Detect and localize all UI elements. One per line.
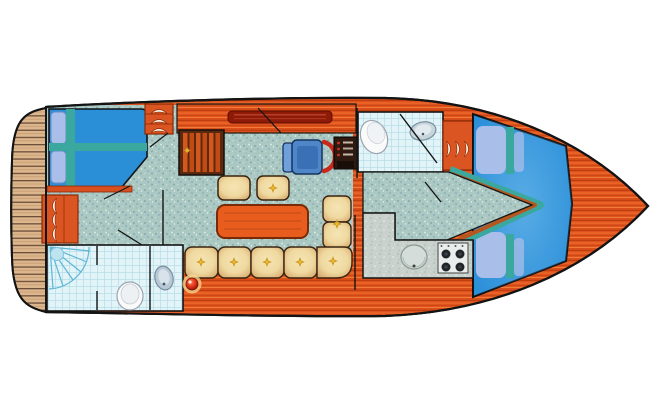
shower-drain bbox=[51, 248, 64, 261]
stool bbox=[218, 176, 250, 200]
wardrobe-locker-forward bbox=[443, 121, 473, 170]
windshield-highlight bbox=[234, 114, 326, 116]
wardrobe-locker-aft bbox=[145, 104, 173, 134]
panel-lower bbox=[337, 161, 354, 168]
berth-pillow-port bbox=[51, 112, 66, 144]
basin-drain bbox=[163, 283, 166, 286]
bow-runner bbox=[506, 127, 514, 174]
swim-platform bbox=[11, 108, 46, 312]
bow-pillow bbox=[476, 232, 506, 278]
berth-pillow-starboard bbox=[51, 151, 66, 183]
helm-seat-cushion bbox=[297, 146, 318, 169]
boat-floor-plan bbox=[0, 0, 664, 415]
windshield-band bbox=[228, 111, 332, 123]
forward-head bbox=[356, 112, 443, 172]
bow-pillow-edge bbox=[514, 132, 524, 172]
sink-drain bbox=[413, 265, 416, 268]
berth-runner-horizontal bbox=[49, 143, 147, 151]
basin-drain bbox=[422, 133, 425, 136]
stove bbox=[438, 243, 468, 273]
dinette-table bbox=[217, 205, 308, 238]
bow-pillow bbox=[476, 126, 506, 174]
bow-runner bbox=[506, 234, 514, 278]
windshield-highlight-2 bbox=[234, 118, 326, 119]
floor-plan-canvas bbox=[0, 0, 664, 415]
companionway-stairs bbox=[179, 130, 224, 175]
helm-station bbox=[283, 137, 357, 174]
settee-cushion bbox=[323, 196, 351, 222]
wardrobe-locker-port bbox=[42, 195, 78, 243]
toilet-seat bbox=[121, 284, 139, 304]
bow-pillow-edge bbox=[514, 238, 524, 276]
aft-head bbox=[47, 245, 183, 311]
sphere-lamp bbox=[183, 275, 202, 294]
